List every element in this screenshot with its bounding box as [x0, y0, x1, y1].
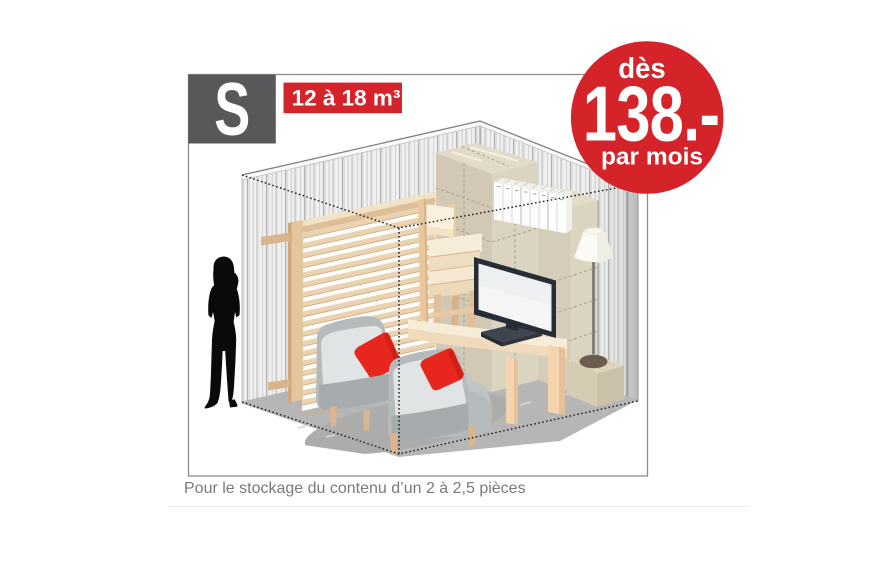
svg-text:Pour le stockage du contenu d’: Pour le stockage du contenu d’un 2 à 2,5…	[184, 480, 526, 497]
svg-text:par mois: par mois	[601, 144, 703, 171]
svg-text:12 à 18 m³: 12 à 18 m³	[292, 86, 401, 111]
svg-text:S: S	[214, 67, 250, 151]
